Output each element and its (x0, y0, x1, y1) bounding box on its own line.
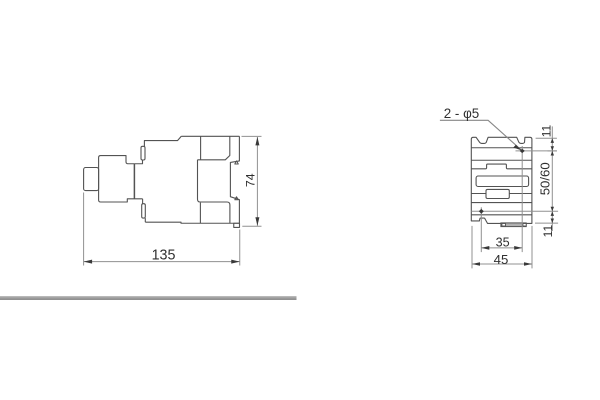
svg-text:35: 35 (496, 235, 510, 249)
svg-text:135: 135 (152, 248, 176, 264)
svg-text:2 - φ5: 2 - φ5 (444, 106, 479, 121)
svg-text:11: 11 (539, 124, 553, 137)
svg-text:74: 74 (243, 173, 257, 187)
svg-text:50/60: 50/60 (537, 162, 552, 195)
svg-text:11: 11 (541, 225, 555, 238)
svg-text:45: 45 (494, 252, 509, 267)
